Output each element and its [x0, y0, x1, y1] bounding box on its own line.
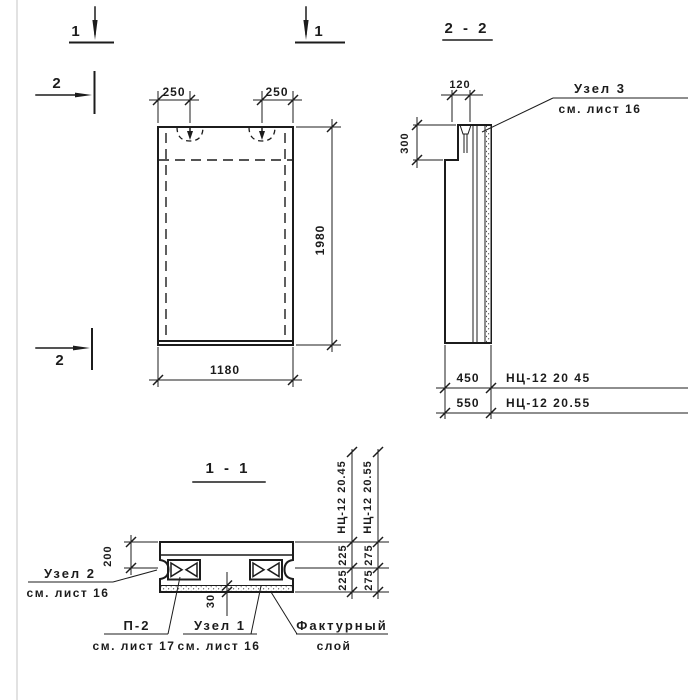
void-bowtie: [268, 563, 279, 577]
dim-text: 275: [363, 569, 375, 590]
thickness-dimension-columns: НЦ-12 20.45 225 225 НЦ-12 20.55 275 275: [295, 447, 389, 599]
leader-line: [113, 570, 157, 582]
void-bowtie: [186, 563, 197, 577]
cut-label: 2: [55, 352, 66, 369]
facing-layer-hatch: [486, 126, 491, 342]
callout-text: Узел 1: [194, 618, 246, 633]
void-outline: [168, 560, 200, 580]
callout-node1: Узел 1 см. лист 16: [178, 586, 261, 653]
void-outline: [250, 560, 282, 580]
down-arrow-icon: [92, 20, 97, 40]
leader-line: [271, 592, 297, 634]
cut-marker-1-left: 1: [70, 7, 113, 43]
section-1-1: 1 - 1 200 30: [27, 447, 389, 653]
leader-line: [482, 98, 553, 132]
dim-text: 200: [102, 545, 114, 566]
dim-text: 225: [337, 544, 349, 565]
callout-facing-layer: Фактурный слой: [271, 592, 388, 653]
callout-node3: Узел 3 см. лист 16: [482, 81, 688, 132]
callout-text: Узел 2: [44, 566, 96, 581]
lifting-loop-right: [249, 127, 275, 141]
dim-text: 550: [456, 396, 479, 410]
section-outline: [445, 125, 491, 343]
leader-line: [251, 586, 261, 634]
dimension-200: 200: [102, 535, 158, 575]
right-arrow-icon: [75, 93, 92, 98]
dimension-1980: 1980: [296, 119, 341, 352]
dim-text: 30: [205, 594, 217, 608]
void-bowtie: [171, 563, 182, 577]
down-arrow-icon: [303, 20, 308, 40]
dim-text: 275: [363, 544, 375, 565]
dimension-120: 120: [441, 79, 483, 122]
dim-text: 250: [162, 85, 185, 99]
callout-text: слой: [317, 639, 352, 653]
callout-text: Узел 3: [574, 81, 626, 96]
dimension-column-nc55: НЦ-12 20.55 275 275: [362, 447, 383, 599]
dimension-250-left: 250: [149, 85, 199, 123]
panel-drawing: 1 1 2 2: [0, 0, 700, 700]
cut-label: 1: [71, 23, 82, 40]
front-view: 250 250 1980 1180: [149, 85, 341, 387]
top-groove: [460, 125, 471, 134]
callout-text: см. лист 17: [93, 639, 176, 653]
dim-text: 250: [265, 85, 288, 99]
dimension-250-right: 250: [253, 85, 302, 123]
dim-text: 225: [337, 569, 349, 590]
dim-text: 1980: [313, 225, 327, 256]
drawing-sheet: 1 1 2 2: [0, 0, 700, 700]
loop-anchor-arrow-icon: [259, 131, 265, 140]
right-arrow-icon: [73, 346, 90, 351]
dimension-30: 30: [205, 572, 232, 616]
cut-label: 2: [52, 75, 63, 92]
dimension-column-nc45: НЦ-12 20.45 225 225: [336, 447, 357, 599]
cut-label: 1: [314, 23, 325, 40]
dim-text: 450: [456, 371, 479, 385]
cut-marker-1-right: 1: [296, 7, 344, 43]
callout-text: Фактурный: [296, 618, 387, 633]
section-2-2: 2 - 2 120 300: [399, 20, 688, 419]
void-bowtie: [253, 563, 264, 577]
panel-mark-text: НЦ-12 20 45: [506, 371, 591, 385]
cut-marker-2-upper: 2: [36, 72, 95, 113]
void-channel-right: [250, 560, 282, 580]
dimension-row-550: 550 НЦ-12 20.55: [436, 396, 688, 418]
dimension-1180: 1180: [149, 347, 302, 387]
view-title: 2 - 2: [444, 20, 489, 37]
panel-mark-text: НЦ-12 20.55: [362, 460, 374, 533]
loop-anchor-arrow-icon: [187, 131, 193, 140]
dim-text: 300: [399, 132, 411, 153]
lifting-loop-left: [177, 127, 203, 141]
callout-node2: Узел 2 см. лист 16: [27, 566, 157, 600]
panel-mark-text: НЦ-12 20.45: [336, 460, 348, 533]
callout-text: см. лист 16: [559, 102, 642, 116]
callout-text: П-2: [124, 618, 151, 633]
void-channel-left: [168, 560, 200, 580]
view-title: 1 - 1: [205, 460, 250, 477]
callout-text: см. лист 16: [178, 639, 261, 653]
dim-text: 120: [449, 79, 470, 91]
callout-text: см. лист 16: [27, 586, 110, 600]
panel-mark-text: НЦ-12 20.55: [506, 396, 591, 410]
cut-marker-2-lower: 2: [36, 329, 92, 369]
dim-text: 1180: [210, 363, 240, 377]
